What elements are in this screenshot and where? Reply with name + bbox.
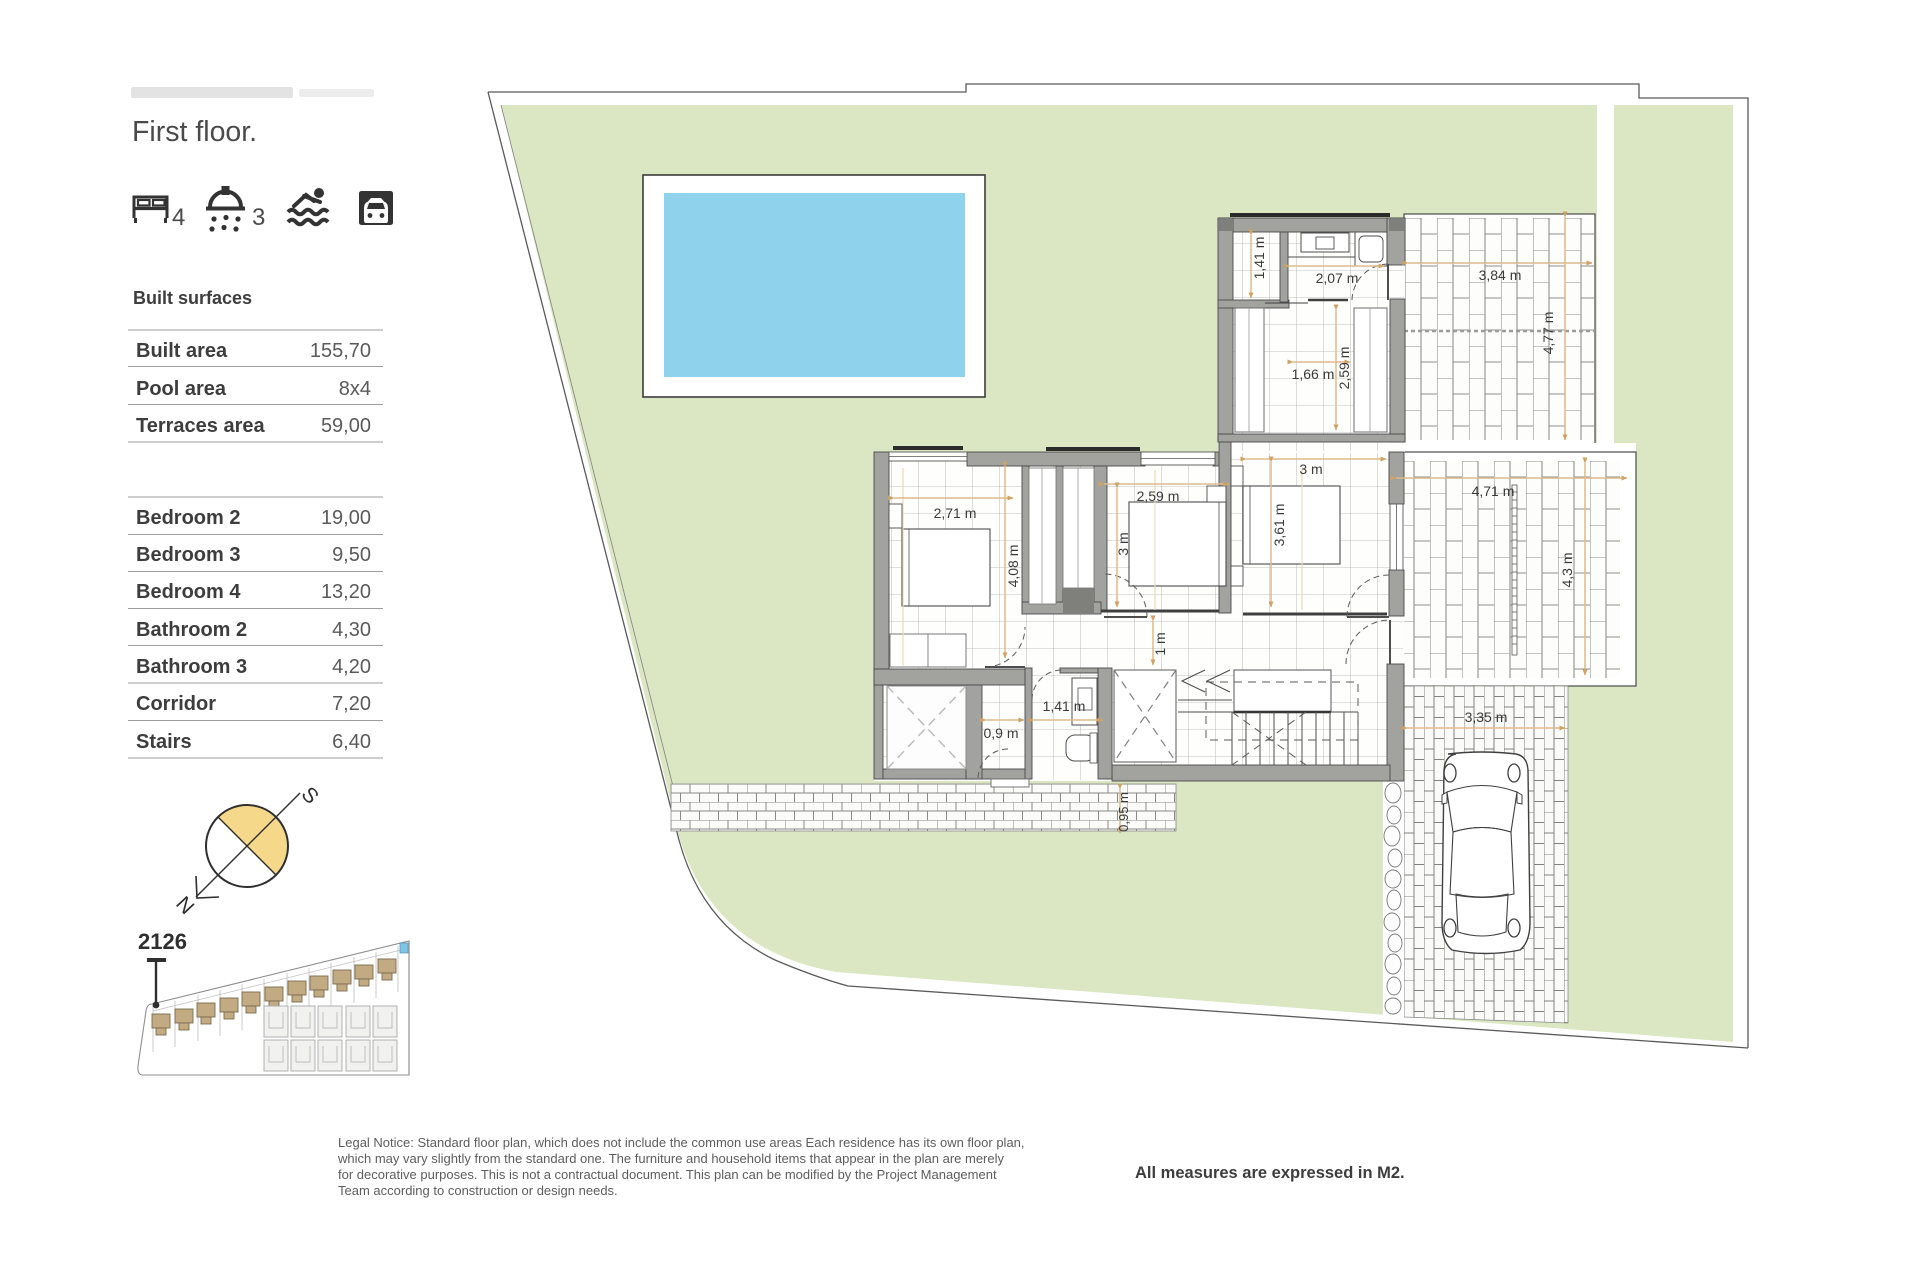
svg-text:0,95 m: 0,95 m	[1116, 792, 1131, 832]
svg-text:Pool area: Pool area	[136, 378, 227, 400]
svg-text:4,3 m: 4,3 m	[1559, 552, 1575, 587]
svg-text:13,20: 13,20	[321, 581, 371, 603]
svg-text:Stairs: Stairs	[136, 731, 192, 753]
svg-text:Team according to construction: Team according to construction or design…	[338, 1183, 618, 1198]
svg-text:3,84 m: 3,84 m	[1479, 267, 1522, 283]
svg-text:2,71 m: 2,71 m	[934, 505, 977, 521]
svg-text:4: 4	[172, 204, 185, 231]
svg-text:4,77 m: 4,77 m	[1540, 312, 1556, 355]
svg-text:All measures are expressed in: All measures are expressed in M2.	[1135, 1164, 1405, 1182]
svg-text:N: N	[171, 892, 198, 919]
svg-text:6,40: 6,40	[332, 731, 371, 753]
svg-text:2,59 m: 2,59 m	[1336, 347, 1352, 390]
svg-text:Bathroom 2: Bathroom 2	[136, 619, 247, 641]
svg-text:3,61 m: 3,61 m	[1271, 504, 1287, 547]
svg-text:2126: 2126	[138, 929, 187, 954]
svg-text:for decorative purposes. This: for decorative purposes. This is not a c…	[338, 1167, 997, 1182]
svg-text:7,20: 7,20	[332, 693, 371, 715]
svg-text:1,41 m: 1,41 m	[1251, 237, 1267, 280]
svg-text:9,50: 9,50	[332, 544, 371, 566]
svg-text:First floor.: First floor.	[132, 116, 257, 148]
svg-text:Corridor: Corridor	[136, 693, 216, 715]
svg-text:3: 3	[252, 204, 265, 231]
svg-text:4,08 m: 4,08 m	[1005, 545, 1021, 588]
svg-text:155,70: 155,70	[310, 340, 371, 362]
svg-text:4,20: 4,20	[332, 656, 371, 678]
svg-text:8x4: 8x4	[339, 378, 371, 400]
svg-text:S: S	[297, 783, 323, 809]
svg-text:3,35 m: 3,35 m	[1465, 709, 1508, 725]
svg-text:0,9 m: 0,9 m	[983, 725, 1018, 741]
svg-text:Bathroom 3: Bathroom 3	[136, 656, 247, 678]
svg-text:1,41 m: 1,41 m	[1043, 698, 1086, 714]
svg-text:Bedroom 3: Bedroom 3	[136, 544, 240, 566]
svg-text:Legal Notice: Standard floor p: Legal Notice: Standard floor plan, which…	[338, 1135, 1025, 1150]
svg-text:4,71 m: 4,71 m	[1472, 483, 1515, 499]
svg-text:Built surfaces: Built surfaces	[133, 288, 252, 308]
svg-text:1 m: 1 m	[1152, 632, 1168, 655]
svg-text:Built area: Built area	[136, 340, 228, 362]
svg-text:Terraces area: Terraces area	[136, 415, 266, 437]
svg-text:19,00: 19,00	[321, 507, 371, 529]
svg-text:4,30: 4,30	[332, 619, 371, 641]
svg-text:2,59 m: 2,59 m	[1137, 488, 1180, 504]
svg-text:3 m: 3 m	[1299, 461, 1322, 477]
svg-text:59,00: 59,00	[321, 415, 371, 437]
svg-text:Bedroom 2: Bedroom 2	[136, 507, 240, 529]
svg-text:Bedroom 4: Bedroom 4	[136, 581, 241, 603]
svg-text:3 m: 3 m	[1115, 532, 1131, 555]
svg-text:1,66 m: 1,66 m	[1292, 366, 1335, 382]
svg-text:which may vary slightly from t: which may vary slightly from the standar…	[337, 1151, 1005, 1166]
svg-text:2,07 m: 2,07 m	[1316, 270, 1359, 286]
